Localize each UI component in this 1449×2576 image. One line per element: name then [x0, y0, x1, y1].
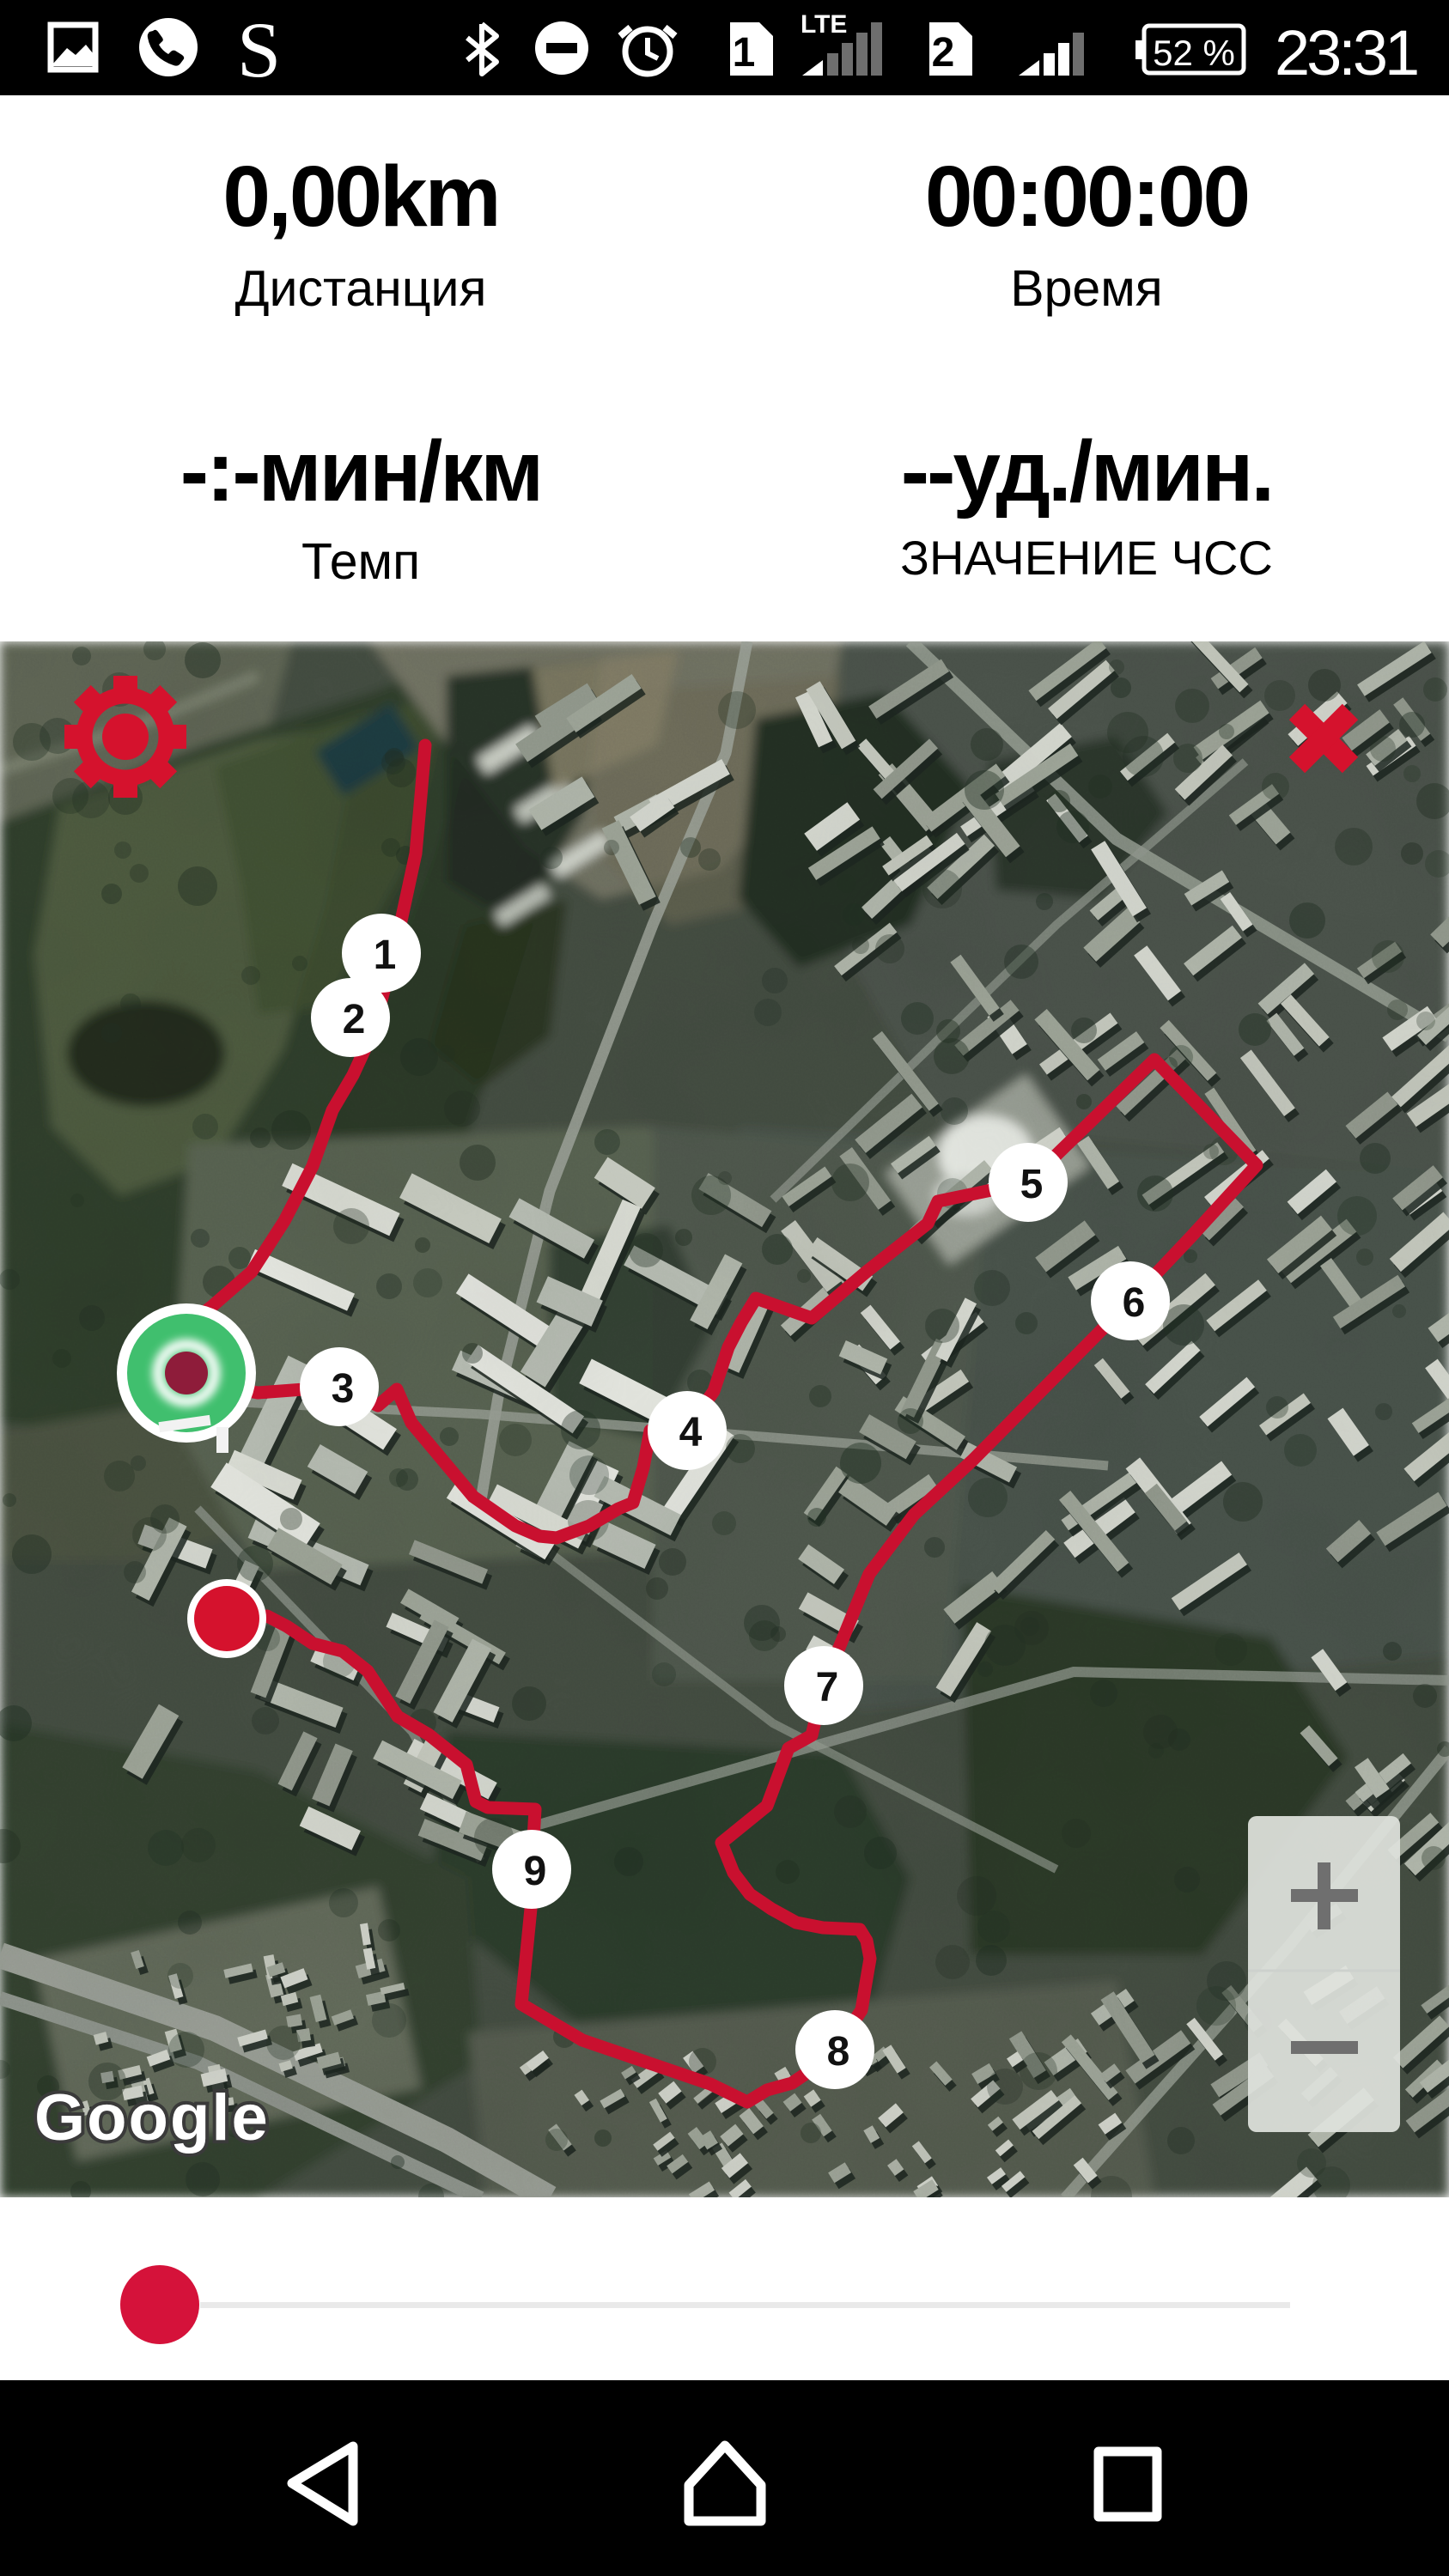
svg-text:Google: Google — [34, 2081, 270, 2154]
svg-text:7: 7 — [816, 1665, 839, 1710]
svg-text:2: 2 — [932, 30, 955, 76]
svg-text:2: 2 — [343, 997, 366, 1042]
svg-text:52 %: 52 % — [1153, 33, 1235, 73]
svg-text:LTE: LTE — [801, 10, 847, 39]
svg-text:S: S — [237, 6, 281, 94]
svg-text:9: 9 — [524, 1849, 547, 1894]
svg-text:1: 1 — [733, 30, 756, 76]
svg-text:3: 3 — [332, 1366, 355, 1412]
svg-text:4: 4 — [679, 1410, 703, 1455]
svg-text:1: 1 — [374, 933, 397, 978]
svg-text:6: 6 — [1123, 1280, 1146, 1326]
svg-text:5: 5 — [1020, 1162, 1044, 1207]
svg-text:8: 8 — [827, 2029, 850, 2075]
